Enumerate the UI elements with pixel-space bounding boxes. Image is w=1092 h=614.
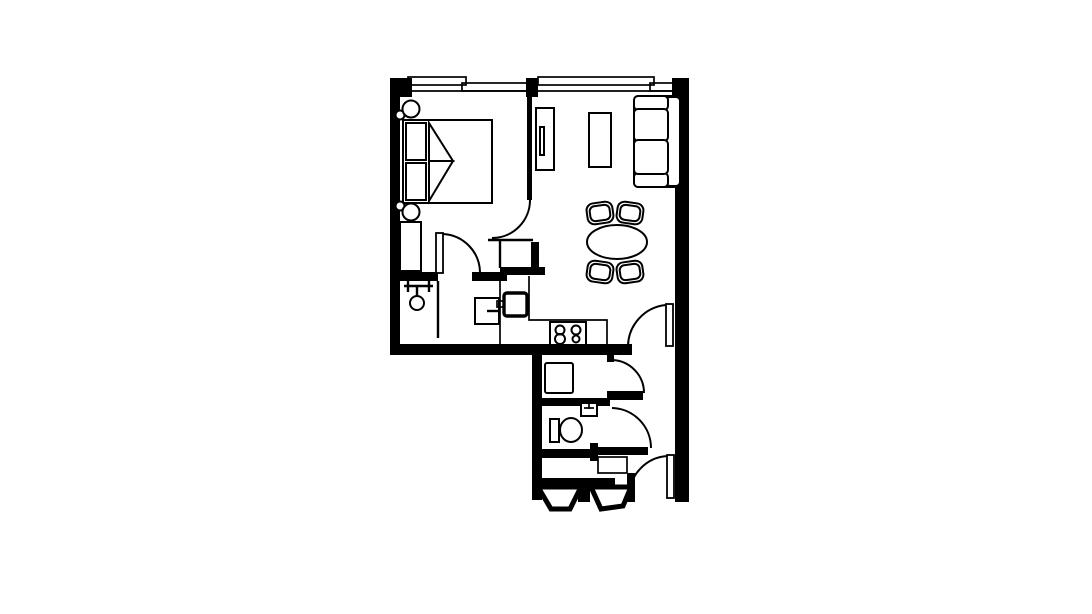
sofa (634, 96, 680, 187)
entry-closet-niche (598, 457, 627, 473)
bedroom-window (400, 77, 528, 91)
dining-chair-top-right (616, 201, 645, 225)
dining-chair-bottom-right (616, 260, 645, 284)
wall-bottom-main (390, 344, 632, 355)
sofa-seat-2 (634, 140, 668, 174)
media-cabinet (589, 113, 611, 167)
bedroom-closet-door (436, 233, 480, 273)
wall-bath-entry-stub (607, 447, 648, 455)
wall-bedroom-living-partition (527, 88, 532, 200)
wall-laundry-bath-stub (607, 391, 643, 400)
entry-center-stub (578, 482, 590, 502)
wall-vestibule-right (531, 242, 539, 268)
toilet-bowl (560, 418, 582, 442)
living-room-window (538, 77, 675, 91)
floor-plan-drawing (0, 0, 1092, 614)
floor-plan-canvas (0, 0, 1092, 614)
oval-dining-table (587, 225, 647, 259)
laundry-room (545, 363, 573, 393)
cooktop (550, 322, 586, 345)
pillow-bottom (406, 163, 426, 200)
laundry-door (612, 360, 644, 393)
sofa-armrest-top (634, 96, 668, 110)
bedroom-main-door (492, 200, 530, 238)
toilet (550, 418, 582, 442)
kitchen (475, 276, 607, 345)
sofa-seat-1 (634, 109, 668, 141)
tv-screen (540, 127, 544, 155)
wall-closet-top (390, 272, 438, 281)
sofa-armrest-bottom (634, 173, 668, 187)
wall-bathroom-bottom (532, 449, 590, 458)
dining-chair-top-left (586, 201, 615, 225)
wall-bathroom-top (532, 398, 610, 406)
washing-machine (545, 363, 573, 393)
dining-chair-bottom-left (586, 260, 615, 284)
bathroom-door (612, 408, 651, 448)
clothes-hanger-icon (410, 296, 424, 310)
bedside-lamp-bottom (403, 204, 420, 221)
wall-niche-top (590, 447, 607, 455)
dresser (400, 222, 421, 271)
kitchen-sink (504, 293, 527, 316)
closet-hanging-rail (404, 280, 433, 310)
living-room-furniture (536, 96, 680, 284)
toilet-tank (550, 419, 559, 442)
dining-set (586, 201, 647, 284)
entry-door (629, 455, 674, 498)
wall-bedroom-door-jamb (472, 272, 507, 281)
bathroom (550, 401, 597, 442)
entry-angled-wall-right (591, 487, 631, 509)
living-hallway-door (628, 304, 673, 346)
entry-angled-wall-left (538, 487, 581, 509)
pillow-top (406, 123, 426, 160)
bedside-lamp-top (403, 101, 420, 118)
wall-extension-left (532, 352, 542, 500)
